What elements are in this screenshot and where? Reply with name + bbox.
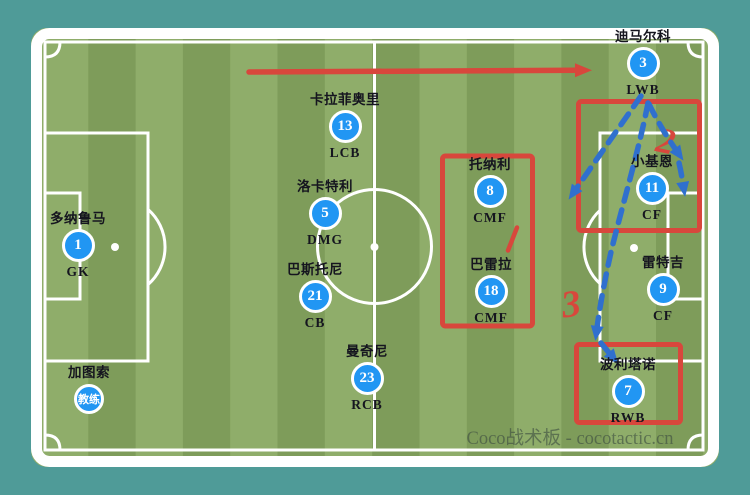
coach-badge-text: 教练 [78, 391, 100, 407]
player-name-label: 巴雷拉 [426, 256, 556, 274]
coach-badge-circle: 教练 [74, 384, 104, 414]
player-number: 23 [360, 370, 375, 387]
player-name-label: 多纳鲁马 [13, 210, 143, 228]
player-position-label: CMF [425, 209, 555, 227]
player-marker[interactable]: 多纳鲁马 1 GK [13, 210, 143, 281]
player-position-label: CF [598, 307, 728, 325]
player-name-label: 曼奇尼 [302, 343, 432, 361]
player-name-label: 托纳利 [425, 156, 555, 174]
tactics-board: Coco战术板 - cocotactic.cn 2 3 多纳鲁马 1 GK 卡拉… [0, 0, 750, 495]
player-marker[interactable]: 曼奇尼 23 RCB [302, 343, 432, 414]
player-position-label: CF [587, 206, 717, 224]
player-position-label: RCB [302, 396, 432, 414]
player-marker[interactable]: 托纳利 8 CMF [425, 156, 555, 227]
player-number-circle: 3 [627, 47, 660, 80]
player-marker[interactable]: 巴雷拉 18 CMF [426, 256, 556, 327]
player-number: 1 [74, 237, 82, 254]
player-number-circle: 11 [636, 172, 669, 205]
player-name-label: 小基恩 [587, 153, 717, 171]
player-marker[interactable]: 巴斯托尼 21 CB [250, 261, 380, 332]
player-number-circle: 18 [475, 275, 508, 308]
player-name-label: 洛卡特利 [260, 178, 390, 196]
player-position-label: CMF [426, 309, 556, 327]
player-name-label: 雷特吉 [598, 254, 728, 272]
coach-marker[interactable]: 加图索 教练 [34, 364, 144, 414]
player-marker[interactable]: 波利塔诺 7 RWB [563, 356, 693, 427]
player-position-label: DMG [260, 231, 390, 249]
player-name-label: 波利塔诺 [563, 356, 693, 374]
player-number-circle: 5 [309, 197, 342, 230]
player-position-label: GK [13, 263, 143, 281]
player-number: 7 [624, 383, 632, 400]
player-number-circle: 13 [329, 110, 362, 143]
coach-name-label: 加图索 [34, 364, 144, 382]
player-name-label: 迪马尔科 [578, 28, 708, 46]
player-name-label: 卡拉菲奥里 [280, 91, 410, 109]
player-position-label: RWB [563, 409, 693, 427]
red-run-arrow[interactable] [249, 70, 577, 72]
player-marker[interactable]: 洛卡特利 5 DMG [260, 178, 390, 249]
player-name-label: 巴斯托尼 [250, 261, 380, 279]
player-number: 9 [659, 281, 667, 298]
player-number: 13 [338, 118, 353, 135]
player-number-circle: 21 [299, 280, 332, 313]
player-position-label: LCB [280, 144, 410, 162]
player-marker[interactable]: 雷特吉 9 CF [598, 254, 728, 325]
player-position-label: CB [250, 314, 380, 332]
player-number-circle: 1 [62, 229, 95, 262]
player-number-circle: 8 [474, 175, 507, 208]
player-position-label: LWB [578, 81, 708, 99]
player-marker[interactable]: 卡拉菲奥里 13 LCB [280, 91, 410, 162]
watermark-text: Coco战术板 - cocotactic.cn [466, 428, 673, 449]
player-marker[interactable]: 小基恩 11 CF [587, 153, 717, 224]
player-number: 21 [308, 288, 323, 305]
player-number-circle: 9 [647, 273, 680, 306]
player-number-circle: 7 [612, 375, 645, 408]
player-number: 5 [321, 205, 329, 222]
player-marker[interactable]: 迪马尔科 3 LWB [578, 28, 708, 99]
player-number: 3 [639, 55, 647, 72]
player-number-circle: 23 [351, 362, 384, 395]
player-number: 8 [486, 183, 494, 200]
player-number: 18 [484, 283, 499, 300]
player-number: 11 [645, 180, 659, 197]
